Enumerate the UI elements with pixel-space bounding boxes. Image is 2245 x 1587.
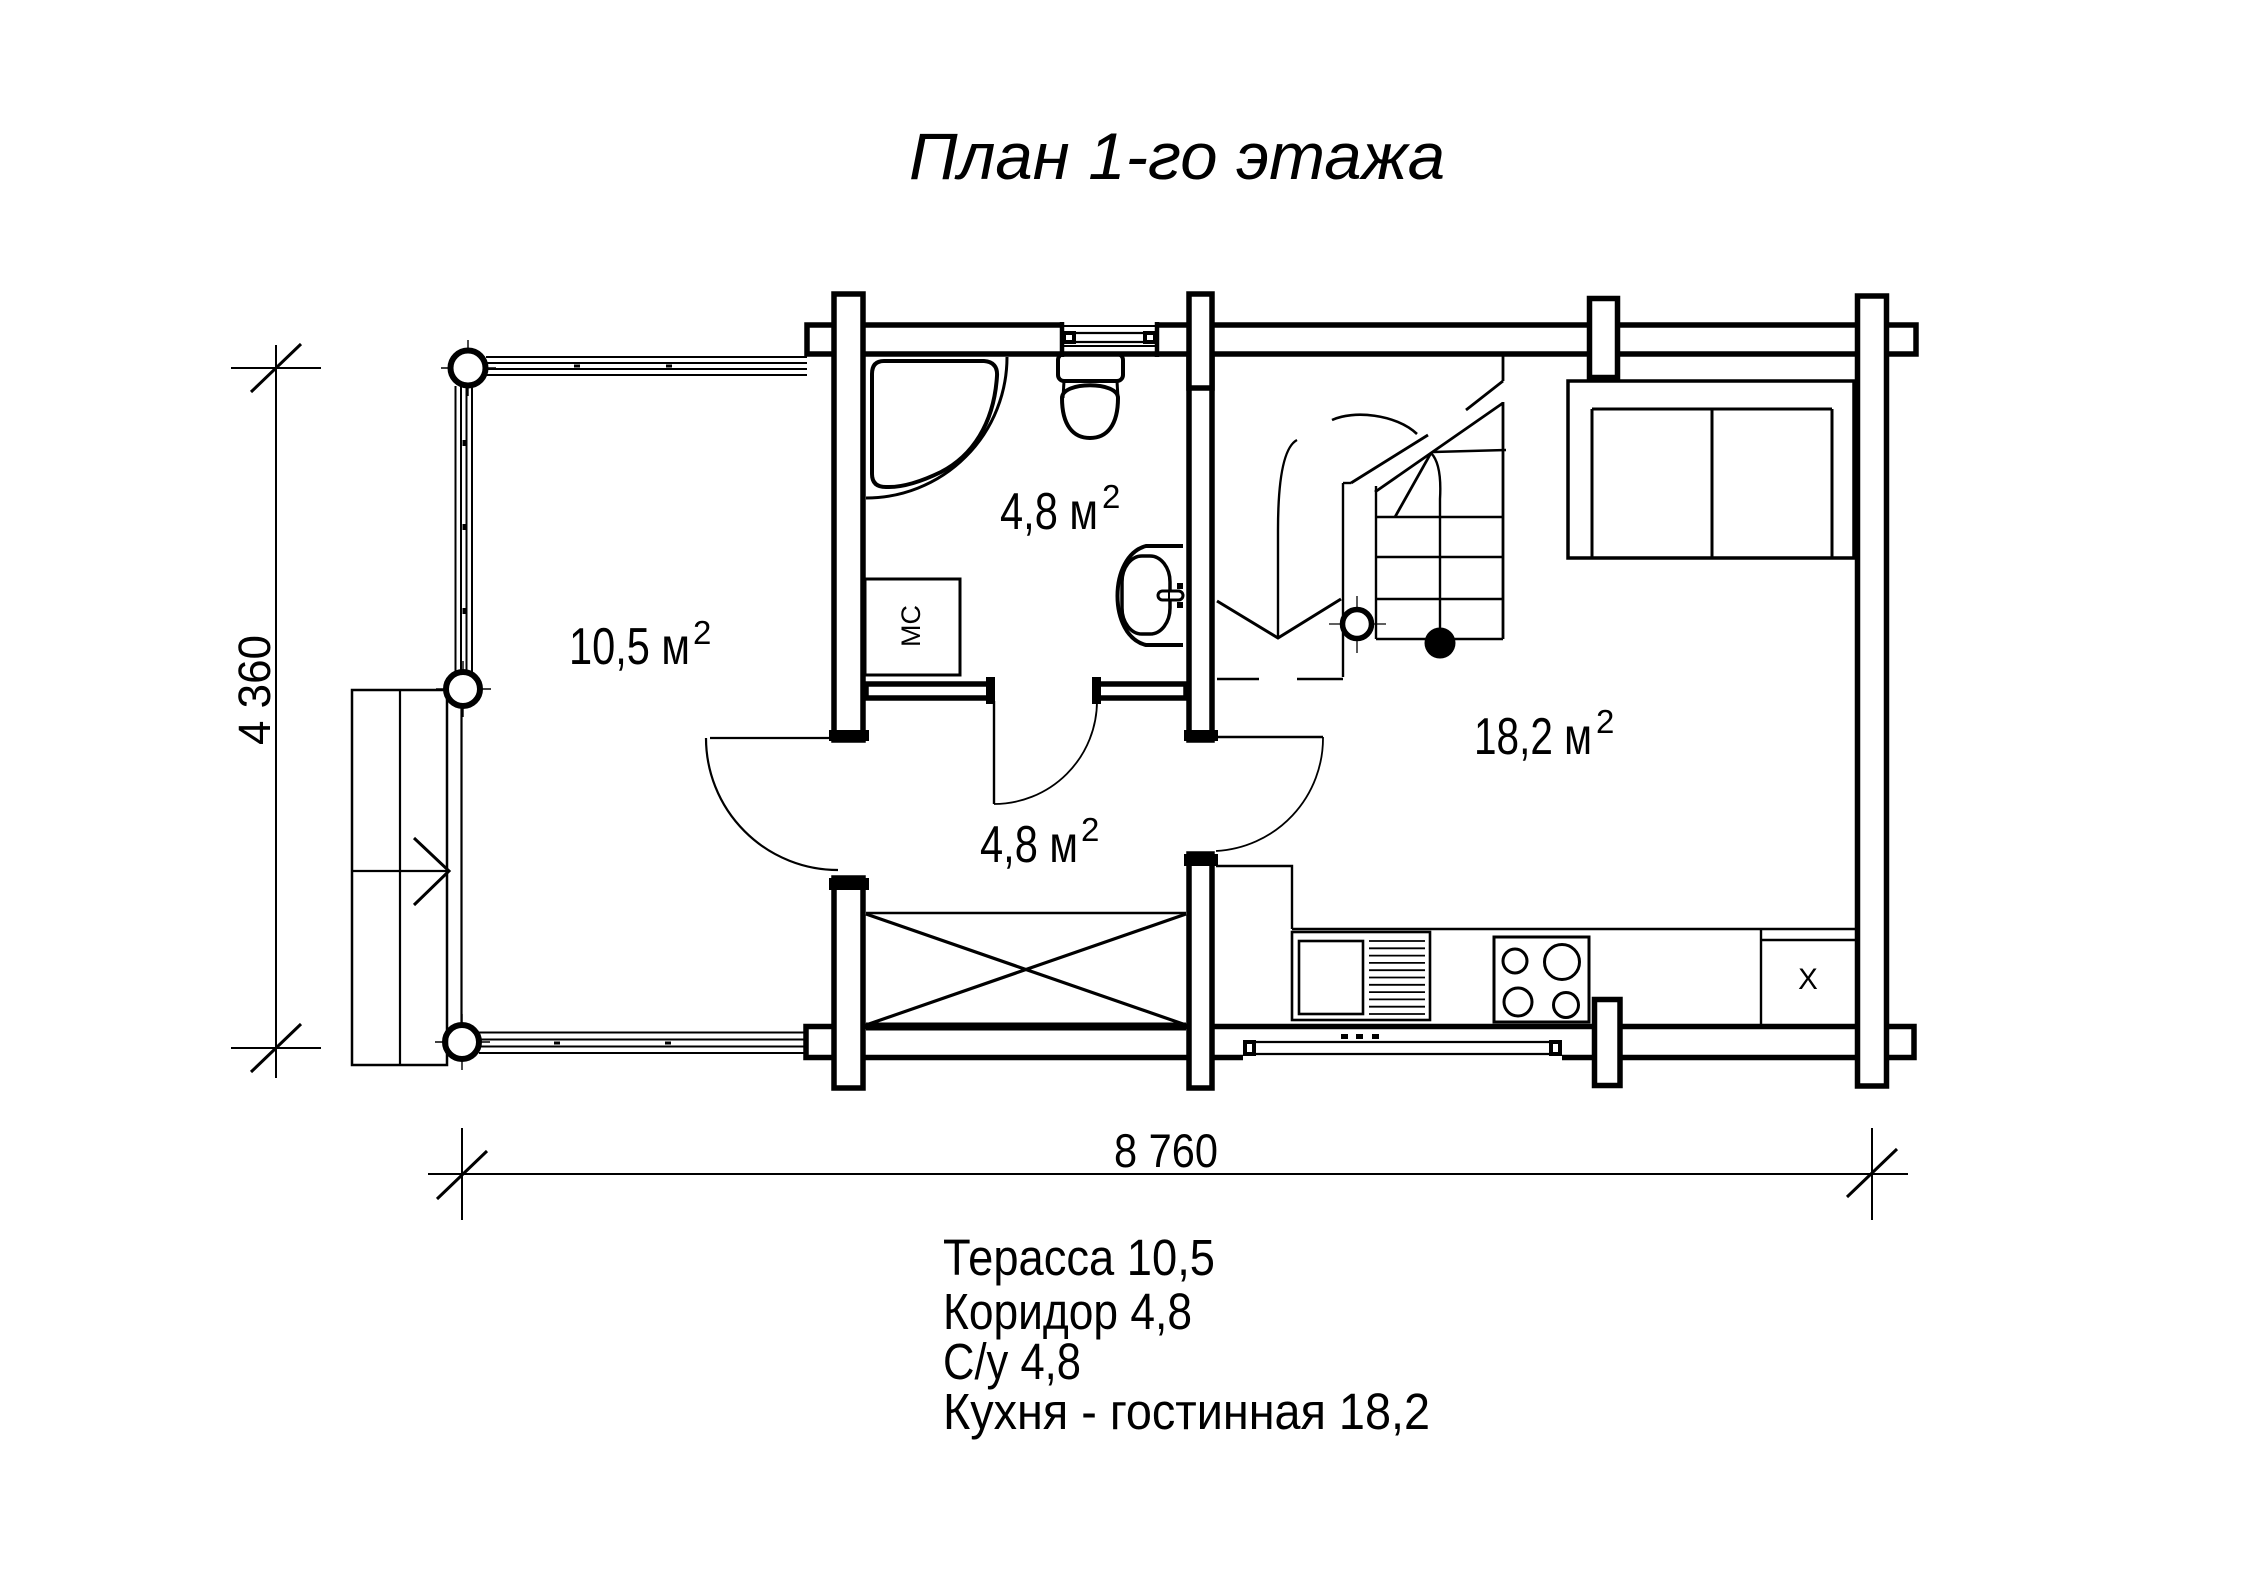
svg-text:X: X — [1798, 963, 1818, 996]
svg-text:Терасса 10,5: Терасса 10,5 — [943, 1229, 1215, 1286]
svg-text:2: 2 — [693, 614, 711, 651]
svg-text:Коридор 4,8: Коридор 4,8 — [943, 1283, 1192, 1340]
svg-text:18,2 м: 18,2 м — [1474, 708, 1592, 766]
svg-text:4 360: 4 360 — [229, 635, 280, 745]
svg-text:2: 2 — [1081, 811, 1099, 848]
svg-text:4,8 м: 4,8 м — [980, 816, 1078, 874]
svg-text:С/у 4,8: С/у 4,8 — [943, 1333, 1081, 1390]
svg-text:Кухня - гостинная 18,2: Кухня - гостинная 18,2 — [943, 1383, 1430, 1440]
svg-text:План 1-го этажа: План 1-го этажа — [909, 119, 1445, 193]
svg-text:2: 2 — [1102, 478, 1120, 515]
svg-text:10,5 м: 10,5 м — [569, 618, 690, 676]
svg-text:8 760: 8 760 — [1114, 1124, 1218, 1177]
svg-text:2: 2 — [1596, 703, 1614, 740]
svg-text:4,8 м: 4,8 м — [1000, 483, 1098, 541]
svg-text:МС: МС — [896, 605, 926, 647]
